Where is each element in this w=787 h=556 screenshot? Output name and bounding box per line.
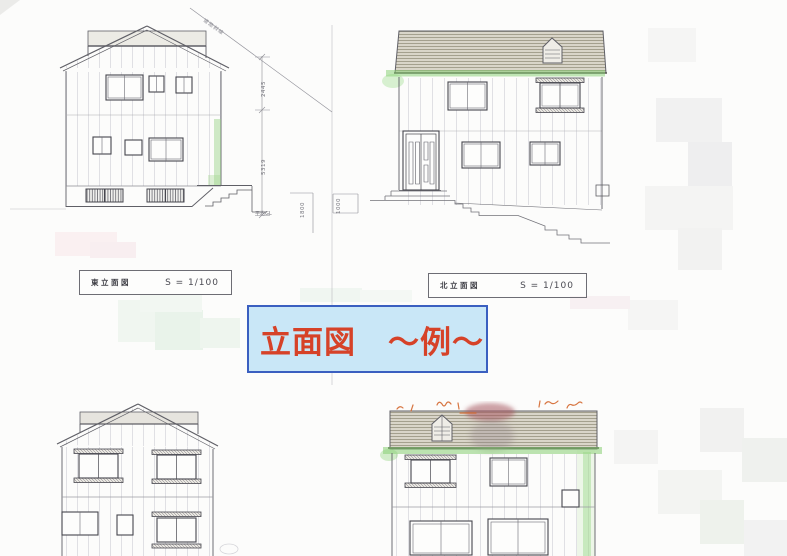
bottom-left-elevation-drawing — [57, 404, 218, 556]
dimension-upper: 2445 — [261, 81, 267, 97]
dimension-lower: 5319 — [261, 159, 267, 175]
north-elevation-drawing — [370, 31, 610, 243]
north-title-block: 北立面図 S = 1/100 — [428, 273, 587, 298]
north-title: 北立面図 — [440, 280, 480, 291]
dimension-ground-drop: 1800 — [300, 202, 306, 218]
east-title: 東立面図 — [91, 277, 131, 288]
north-scale: S = 1/100 — [520, 281, 574, 291]
bottom-right-elevation-drawing — [380, 401, 602, 556]
caption-banner: 立面図 ～例～ — [247, 305, 488, 373]
scanned-drawing-page: 立面図 ～例～ 東立面図 S = 1/100 北立面図 S = 1/100 24… — [0, 0, 787, 556]
gl-label: 平均GL — [255, 210, 272, 217]
dimension-retaining: 1000 — [336, 198, 342, 214]
east-scale: S = 1/100 — [165, 278, 219, 288]
caption-text: 立面図 ～例～ — [260, 317, 484, 362]
east-title-block: 東立面図 S = 1/100 — [79, 270, 232, 295]
